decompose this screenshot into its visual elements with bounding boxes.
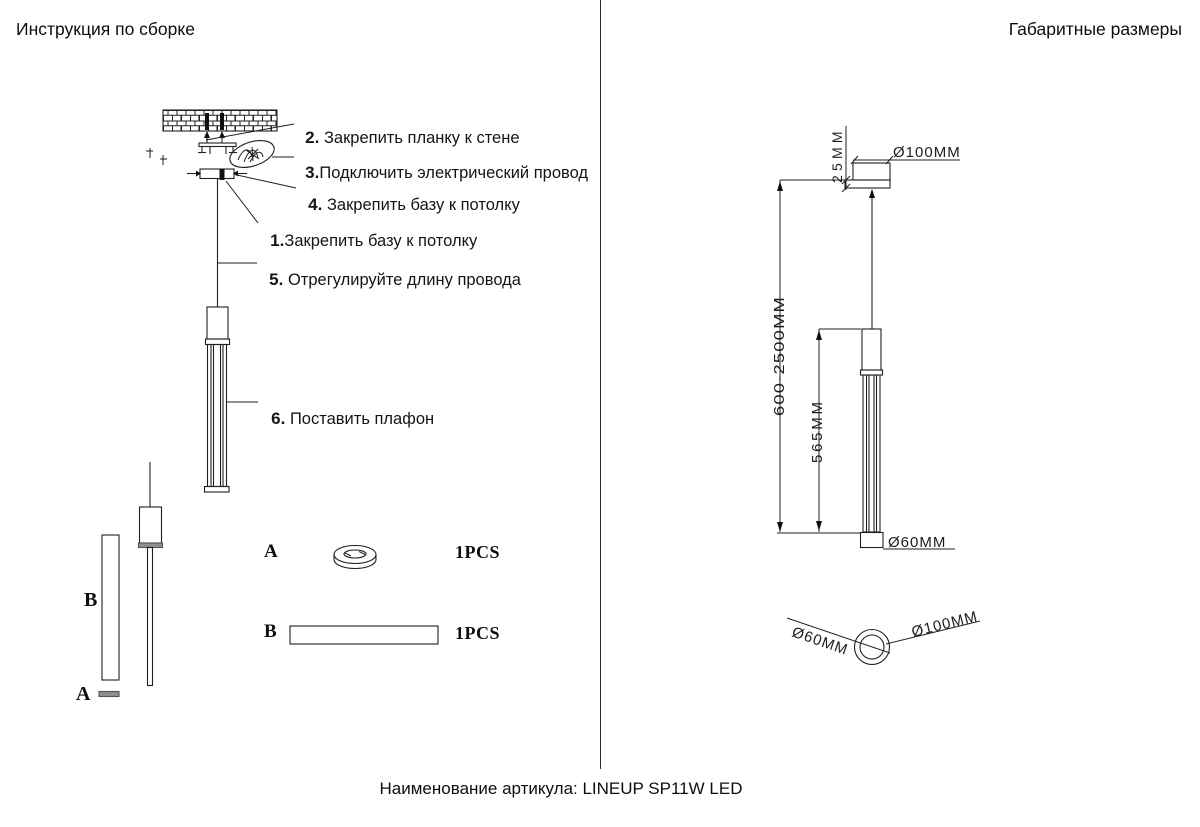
step-text: Закрепить базу к потолку <box>322 196 519 214</box>
component-label-b: B <box>84 590 97 611</box>
step-label-6: 6. Поставить плафон <box>262 393 434 429</box>
parts-row-a-letter: A <box>264 542 278 562</box>
step-label-5: 5. Отрегулируйте длину провода <box>260 254 521 290</box>
step-label-2: 2. Закрепить планку к стене <box>296 112 520 148</box>
component-label-a: A <box>76 684 90 705</box>
step-label-1: 1.Закрепить базу к потолку <box>261 215 477 251</box>
step-number: 5. <box>269 270 283 289</box>
parts-row-a-qty: 1PCS <box>455 543 500 562</box>
wire-connection-bubble <box>226 135 277 172</box>
article-name: Наименование артикула: LINEUP SP11W LED <box>0 780 1122 798</box>
dim-label-shade-diameter: Ø60MM <box>888 534 946 551</box>
dim-label-canopy-diameter: Ø100MM <box>893 144 961 161</box>
step-text: Закрепить планку к стене <box>319 129 519 147</box>
diagram-canvas: 25MM Ø100MM 600-2500MM 565MM Ø60MM Ø60MM… <box>0 0 1200 827</box>
instruction-sheet: 25MM Ø100MM 600-2500MM 565MM Ø60MM Ø60MM… <box>0 0 1200 827</box>
step-number: 1. <box>270 231 284 250</box>
step-label-4: 4. Закрепить базу к потолку <box>299 179 520 215</box>
ceiling-base <box>187 169 247 180</box>
dim-label-shade-height: 565MM <box>809 401 826 463</box>
part-a-ring-icon <box>334 546 376 569</box>
part-b-bar <box>102 535 119 680</box>
step-text: Поставить плафон <box>285 410 434 428</box>
cable-arrow <box>869 189 875 198</box>
screw-symbols <box>146 148 167 165</box>
right-panel-title: Габаритные размеры <box>1009 20 1182 38</box>
dim-canopy <box>845 163 890 188</box>
exploded-rod-assembly <box>139 462 163 686</box>
pendant-cap <box>206 307 230 345</box>
part-b-bar-icon <box>290 626 438 644</box>
parts-row-b-letter: B <box>264 622 277 642</box>
mounting-bracket <box>198 143 237 154</box>
step-text: Отрегулируйте длину провода <box>283 271 521 289</box>
dim-label-bottom-canopy: Ø100MM <box>910 608 980 641</box>
step-text: Закрепить базу к потолку <box>284 232 477 250</box>
dim-label-canopy-height: 25MM <box>829 131 845 183</box>
step-label-3: 3.Подключить электрический провод <box>296 147 588 183</box>
step-number: 2. <box>305 128 319 147</box>
pendant-shade <box>205 345 230 493</box>
wall-hatch <box>163 110 277 143</box>
part-a-plate <box>99 692 119 697</box>
parts-row-b-qty: 1PCS <box>455 624 500 643</box>
step-number: 6. <box>271 409 285 428</box>
dim-label-suspension-range: 600-2500MM <box>771 296 788 416</box>
left-panel-title: Инструкция по сборке <box>16 20 195 38</box>
dim-lamp <box>861 329 884 548</box>
step-number: 4. <box>308 195 322 214</box>
